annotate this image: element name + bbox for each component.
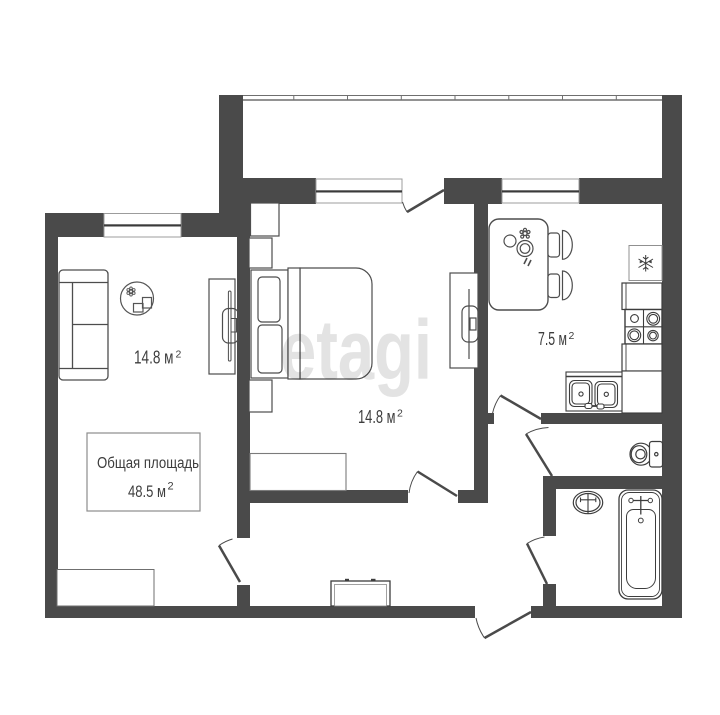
- svg-text:14.8 м: 14.8 м: [358, 406, 396, 427]
- svg-text:2: 2: [176, 349, 182, 361]
- svg-text:2: 2: [397, 408, 403, 420]
- svg-text:7.5 м: 7.5 м: [538, 329, 567, 349]
- svg-text:48.5 м: 48.5 м: [128, 482, 166, 501]
- svg-text:14.8 м: 14.8 м: [134, 348, 174, 368]
- svg-text:2: 2: [569, 330, 575, 342]
- svg-text:etagi: etagi: [280, 303, 432, 397]
- svg-text:2: 2: [168, 481, 174, 493]
- svg-text:Общая площадь: Общая площадь: [97, 455, 199, 472]
